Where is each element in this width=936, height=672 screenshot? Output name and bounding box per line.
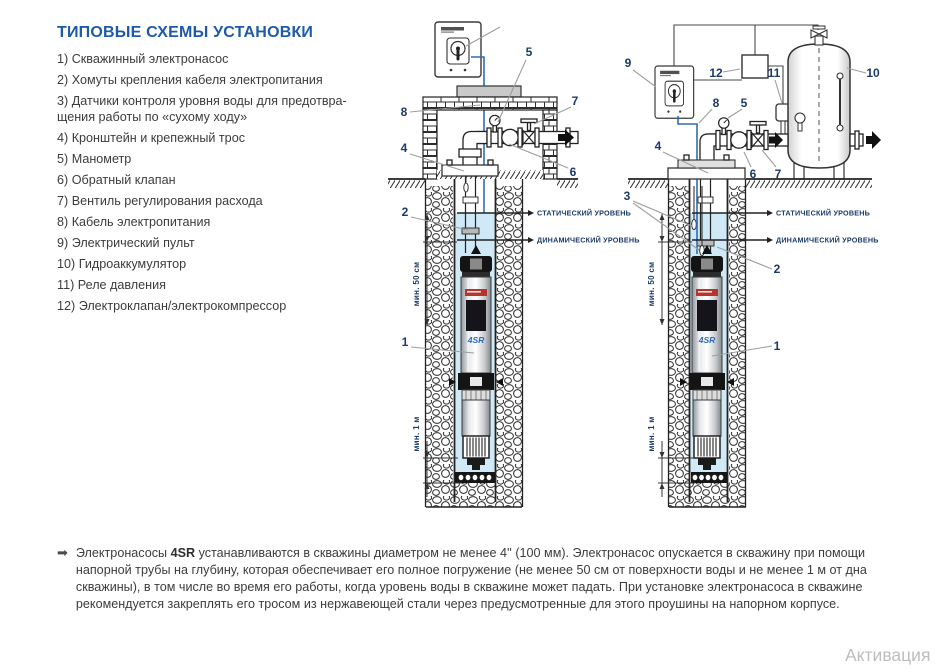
outlet-arrow xyxy=(866,131,881,149)
callout-10: 10 xyxy=(866,66,880,80)
callout-9: 9 xyxy=(625,56,632,70)
note-text-after: устанавливаются в скважины диаметром не … xyxy=(76,546,867,611)
callout-1: 1 xyxy=(774,339,781,353)
wellhead-bracket xyxy=(668,168,745,179)
diagram-borehole-tank: СТАТИЧЕСКИЙ УРОВЕНЬ ДИНАМИЧЕСКИЙ УРОВЕНЬ… xyxy=(624,25,881,507)
callout-7: 7 xyxy=(775,167,782,181)
tank-gauge-icon xyxy=(795,113,805,123)
callout-7: 7 xyxy=(572,94,579,108)
dynamic-level-label: ДИНАМИЧЕСКИЙ УРОВЕНЬ xyxy=(776,236,879,245)
callout-8: 8 xyxy=(401,105,408,119)
level-sensor-icon xyxy=(464,183,468,192)
callout-4: 4 xyxy=(655,139,662,153)
activation-watermark: Активация xyxy=(845,645,930,666)
pipe-joint xyxy=(463,197,478,203)
callout-6: 6 xyxy=(570,165,577,179)
callout-12: 12 xyxy=(709,66,723,80)
callout-11: 11 xyxy=(768,66,781,80)
gravel-pack xyxy=(729,186,745,506)
ground-hatch xyxy=(557,179,578,188)
note-pump-model: 4SR xyxy=(171,546,196,560)
static-level-label: СТАТИЧЕСКИЙ УРОВЕНЬ xyxy=(537,209,631,218)
callout-2: 2 xyxy=(402,205,409,219)
ground-hatch xyxy=(628,179,668,188)
hydroaccumulator-icon xyxy=(788,26,881,179)
pipe-joint xyxy=(698,197,713,203)
callout-1: 1 xyxy=(402,335,409,349)
static-level-label: СТАТИЧЕСКИЙ УРОВЕНЬ xyxy=(776,209,870,218)
solenoid-compressor-box xyxy=(742,55,768,78)
gravel-pack xyxy=(496,186,522,506)
svg-text:мин. 50 см: мин. 50 см xyxy=(412,262,421,307)
diagram-borehole-pit: СТАТИЧЕСКИЙ УРОВЕНЬ ДИНАМИЧЕСКИЙ УРОВЕНЬ… xyxy=(388,22,640,507)
ground-hatch xyxy=(388,179,425,188)
dynamic-level-label: ДИНАМИЧЕСКИЙ УРОВЕНЬ xyxy=(537,236,640,245)
brick-wall xyxy=(543,110,557,179)
svg-text:мин. 50 см: мин. 50 см xyxy=(647,262,656,307)
air-valve-icon xyxy=(811,26,827,45)
cable-clamp xyxy=(697,240,714,246)
well-bottom-gravel xyxy=(669,483,746,507)
svg-text:мин. 1 м: мин. 1 м xyxy=(647,416,656,451)
callout-3: 3 xyxy=(624,189,631,203)
callout-5: 5 xyxy=(526,45,533,59)
brick-wall xyxy=(423,97,557,110)
ground-hatch xyxy=(746,179,872,188)
callout-4: 4 xyxy=(401,141,408,155)
brick-wall xyxy=(423,110,437,179)
arrow-bullet-icon: ➡ xyxy=(57,545,68,562)
callout-5: 5 xyxy=(741,96,748,110)
well-bottom-gravel xyxy=(426,483,522,507)
callout-2: 2 xyxy=(774,262,781,276)
installation-note-text: Электронасосы 4SR устанавливаются в сква… xyxy=(76,545,872,614)
note-text-before: Электронасосы xyxy=(76,546,171,560)
callout-8: 8 xyxy=(713,96,720,110)
svg-text:мин. 1 м: мин. 1 м xyxy=(412,416,421,451)
callout-6: 6 xyxy=(750,167,757,181)
installation-note: ➡ Электронасосы 4SR устанавливаются в ск… xyxy=(57,545,875,614)
